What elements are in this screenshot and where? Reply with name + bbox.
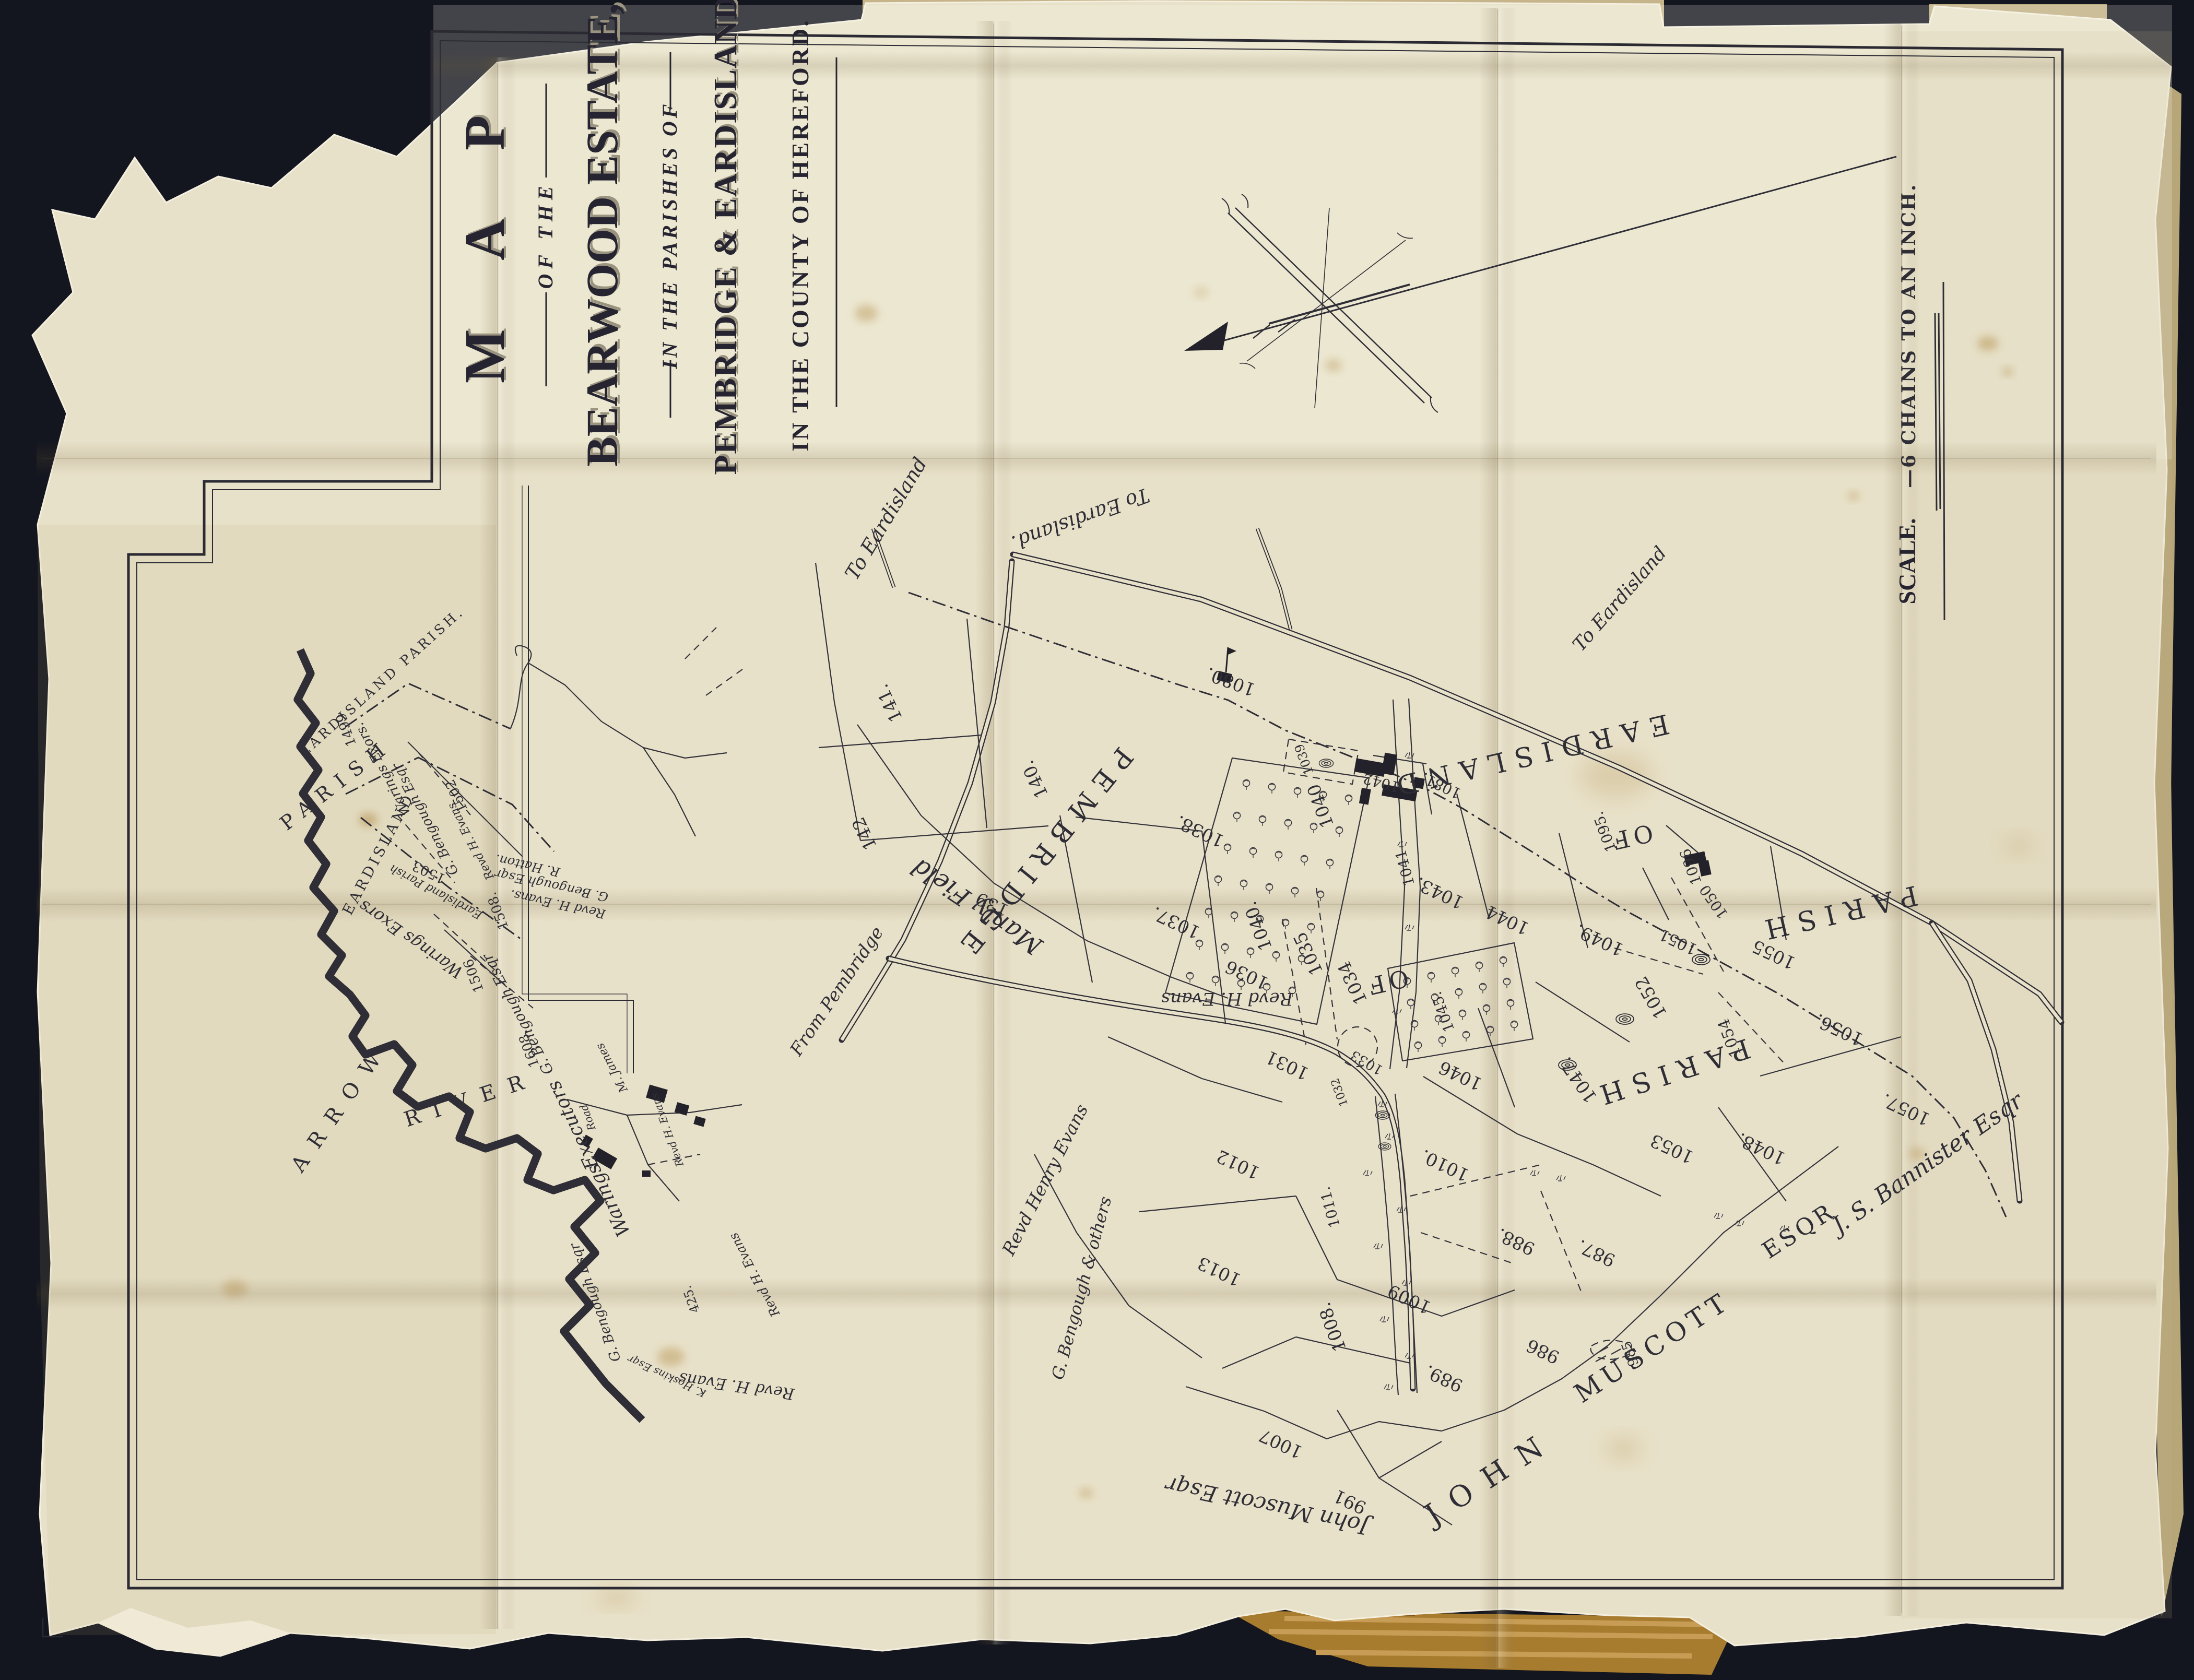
title-parish-names: PEMBRIDGE & EARDISLAND — [708, 0, 744, 475]
scale-text: —6 CHAINS TO AN INCH. — [1898, 183, 1920, 488]
title-of-the: OF THE — [534, 181, 557, 289]
title-map: M A P — [453, 87, 516, 383]
estate-map-svg: SCALE. —6 CHAINS TO AN INCH. M A P M A P… — [0, 0, 2194, 1680]
title-parishes: IN THE PARISHES OF — [658, 101, 681, 370]
title-estate: BEARWOOD ESTATE, — [577, 3, 627, 466]
scale-word: SCALE. — [1894, 518, 1920, 605]
paper-sheet — [32, 1, 2172, 1656]
owner-label: Revd H. Evans — [1161, 988, 1293, 1009]
map-sheet-stage: SCALE. —6 CHAINS TO AN INCH. M A P M A P… — [0, 0, 2194, 1680]
title-county: IN THE COUNTY OF HEREFORD. — [787, 18, 813, 451]
paper-tone-right — [1901, 31, 2172, 1618]
